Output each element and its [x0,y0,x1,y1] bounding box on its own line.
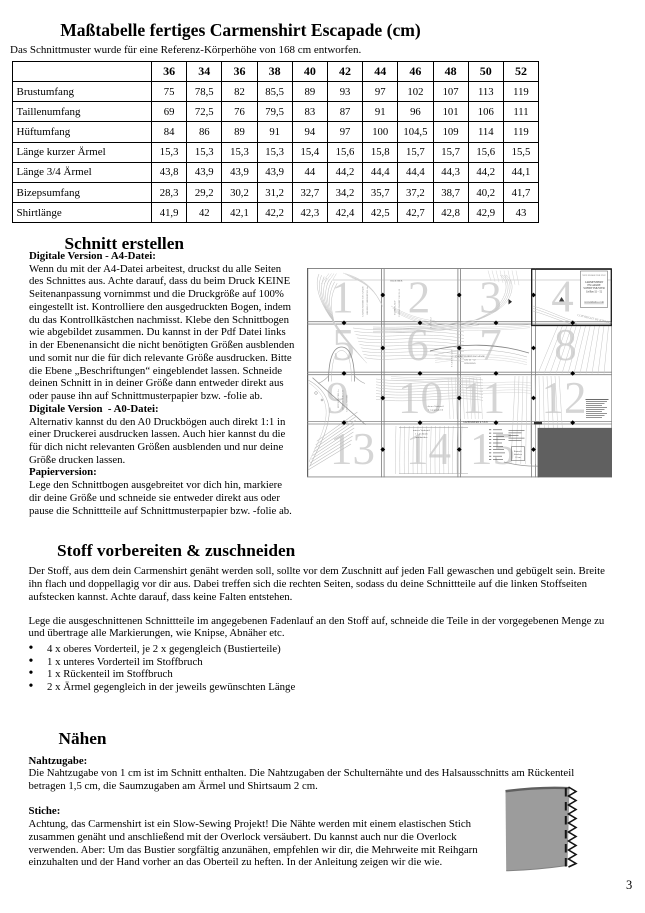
svg-text:FADENLAUF: FADENLAUF [393,300,396,315]
svg-text:15: 15 [470,424,515,474]
svg-text:2 x gegengleich: 2 x gegengleich [427,409,443,412]
svg-text:CARMENSHIRT: CARMENSHIRT [345,394,348,412]
svg-text:KLEB HIER: KLEB HIER [390,281,402,283]
svg-text:OBERES VORDERTEIL 4x: OBERES VORDERTEIL 4x [366,286,369,315]
svg-text:CARMENSHIRT GR 32-52: CARMENSHIRT GR 32-52 [398,288,401,317]
svg-text:Kontroll-: Kontroll- [513,451,521,453]
svg-text:10 cm: 10 cm [515,457,521,459]
svg-text:zuschneiden: zuschneiden [415,436,428,439]
svg-text:kästchen: kästchen [514,453,523,456]
svg-text:1: 1 [331,273,354,323]
svg-text:2: 2 [407,273,430,323]
svg-text:11: 11 [461,373,504,423]
svg-text:Größen 32 – 52: Größen 32 – 52 [585,291,602,294]
svg-text:NICE EBOOK FOR YOU: NICE EBOOK FOR YOU [582,275,606,277]
svg-text:IM STOFFBRUCH: IM STOFFBRUCH [341,390,344,410]
svg-text:CARMENSHIRT ESCAPADE: CARMENSHIRT ESCAPADE [361,286,364,317]
svg-text:RÜCKENTEIL 1x: RÜCKENTEIL 1x [337,389,340,408]
svg-text:www.kibadoo.com: www.kibadoo.com [584,301,603,304]
svg-text:L I Z E N Z: L I Z E N Z [430,317,432,328]
svg-text:F A D E N L A U F: F A D E N L A U F [450,349,453,367]
svg-text:KIBADOO: KIBADOO [464,362,475,365]
svg-text:LIZENZIERT 4 5 6 8: LIZENZIERT 4 5 6 8 [463,421,488,424]
